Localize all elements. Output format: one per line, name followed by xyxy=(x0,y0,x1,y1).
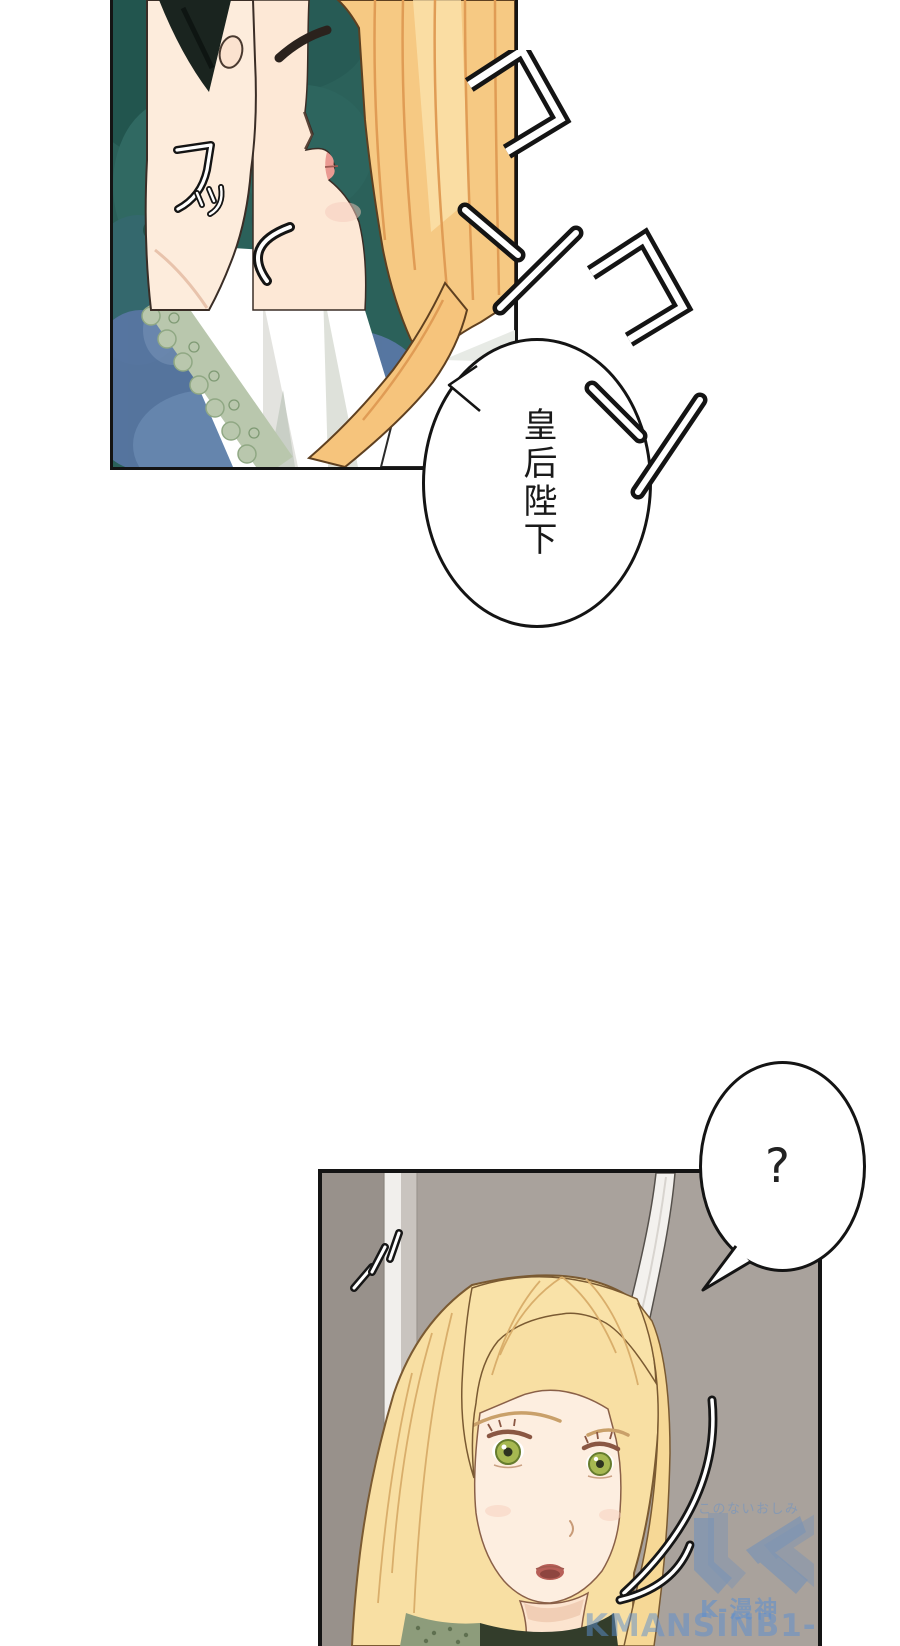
knock-ko-2 xyxy=(587,235,687,344)
speech-bubble-empress-text: 皇后陛下 xyxy=(518,407,556,559)
knock-sfx-label-1: コン xyxy=(0,0,1,1)
speech-bubble-question: ? xyxy=(699,1061,866,1272)
comic-page: コン コン フッ 皇后陛下 xyxy=(0,0,900,1646)
chuckle-sfx-label: フッ xyxy=(0,0,1,1)
speech-bubble-empress: 皇后陛下 xyxy=(422,338,652,628)
speech-bubble-question-text: ? xyxy=(765,1139,790,1194)
knock-sfx-label-2: コン xyxy=(0,0,1,1)
